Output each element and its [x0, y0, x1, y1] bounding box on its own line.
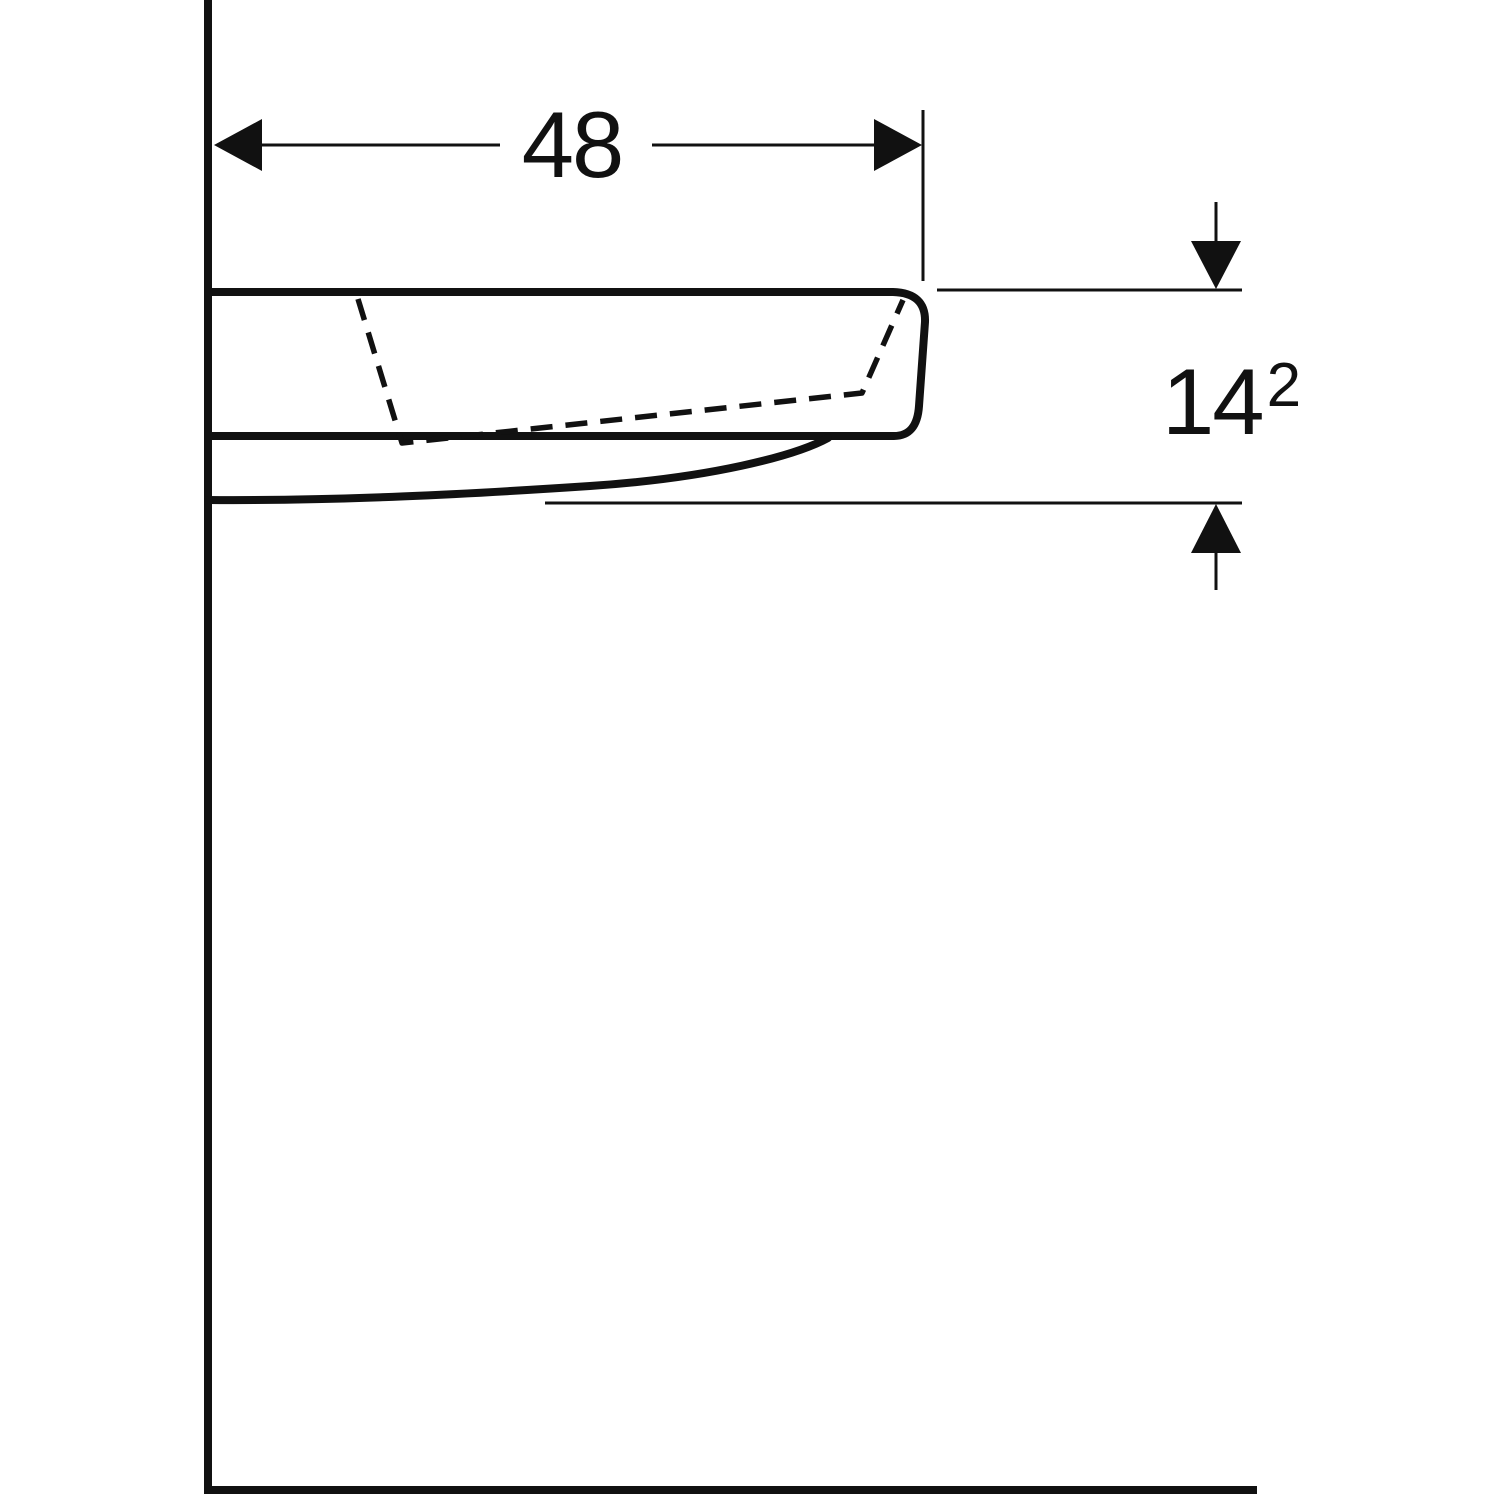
- floor-line: [204, 1486, 1257, 1494]
- height-dimension-superscript: 2: [1267, 351, 1299, 420]
- basin-underside-curve: [208, 438, 828, 500]
- basin-inner-dashed-outline: [358, 299, 903, 443]
- arrowhead-up-icon: [1191, 504, 1241, 553]
- width-dimension: 48: [214, 92, 923, 281]
- arrowhead-left-icon: [214, 119, 262, 171]
- height-dimension-value: 14: [1162, 349, 1263, 454]
- width-dimension-value: 48: [522, 92, 623, 197]
- arrowhead-down-icon: [1191, 241, 1241, 289]
- arrowhead-right-icon: [874, 119, 922, 171]
- wall-line: [204, 0, 212, 1494]
- drawing-canvas: 48 142: [0, 0, 1500, 1500]
- basin-outline: [206, 292, 925, 436]
- height-dimension-label: 142: [1162, 349, 1299, 454]
- technical-drawing: 48 142: [0, 0, 1500, 1500]
- basin-profile: [206, 292, 925, 500]
